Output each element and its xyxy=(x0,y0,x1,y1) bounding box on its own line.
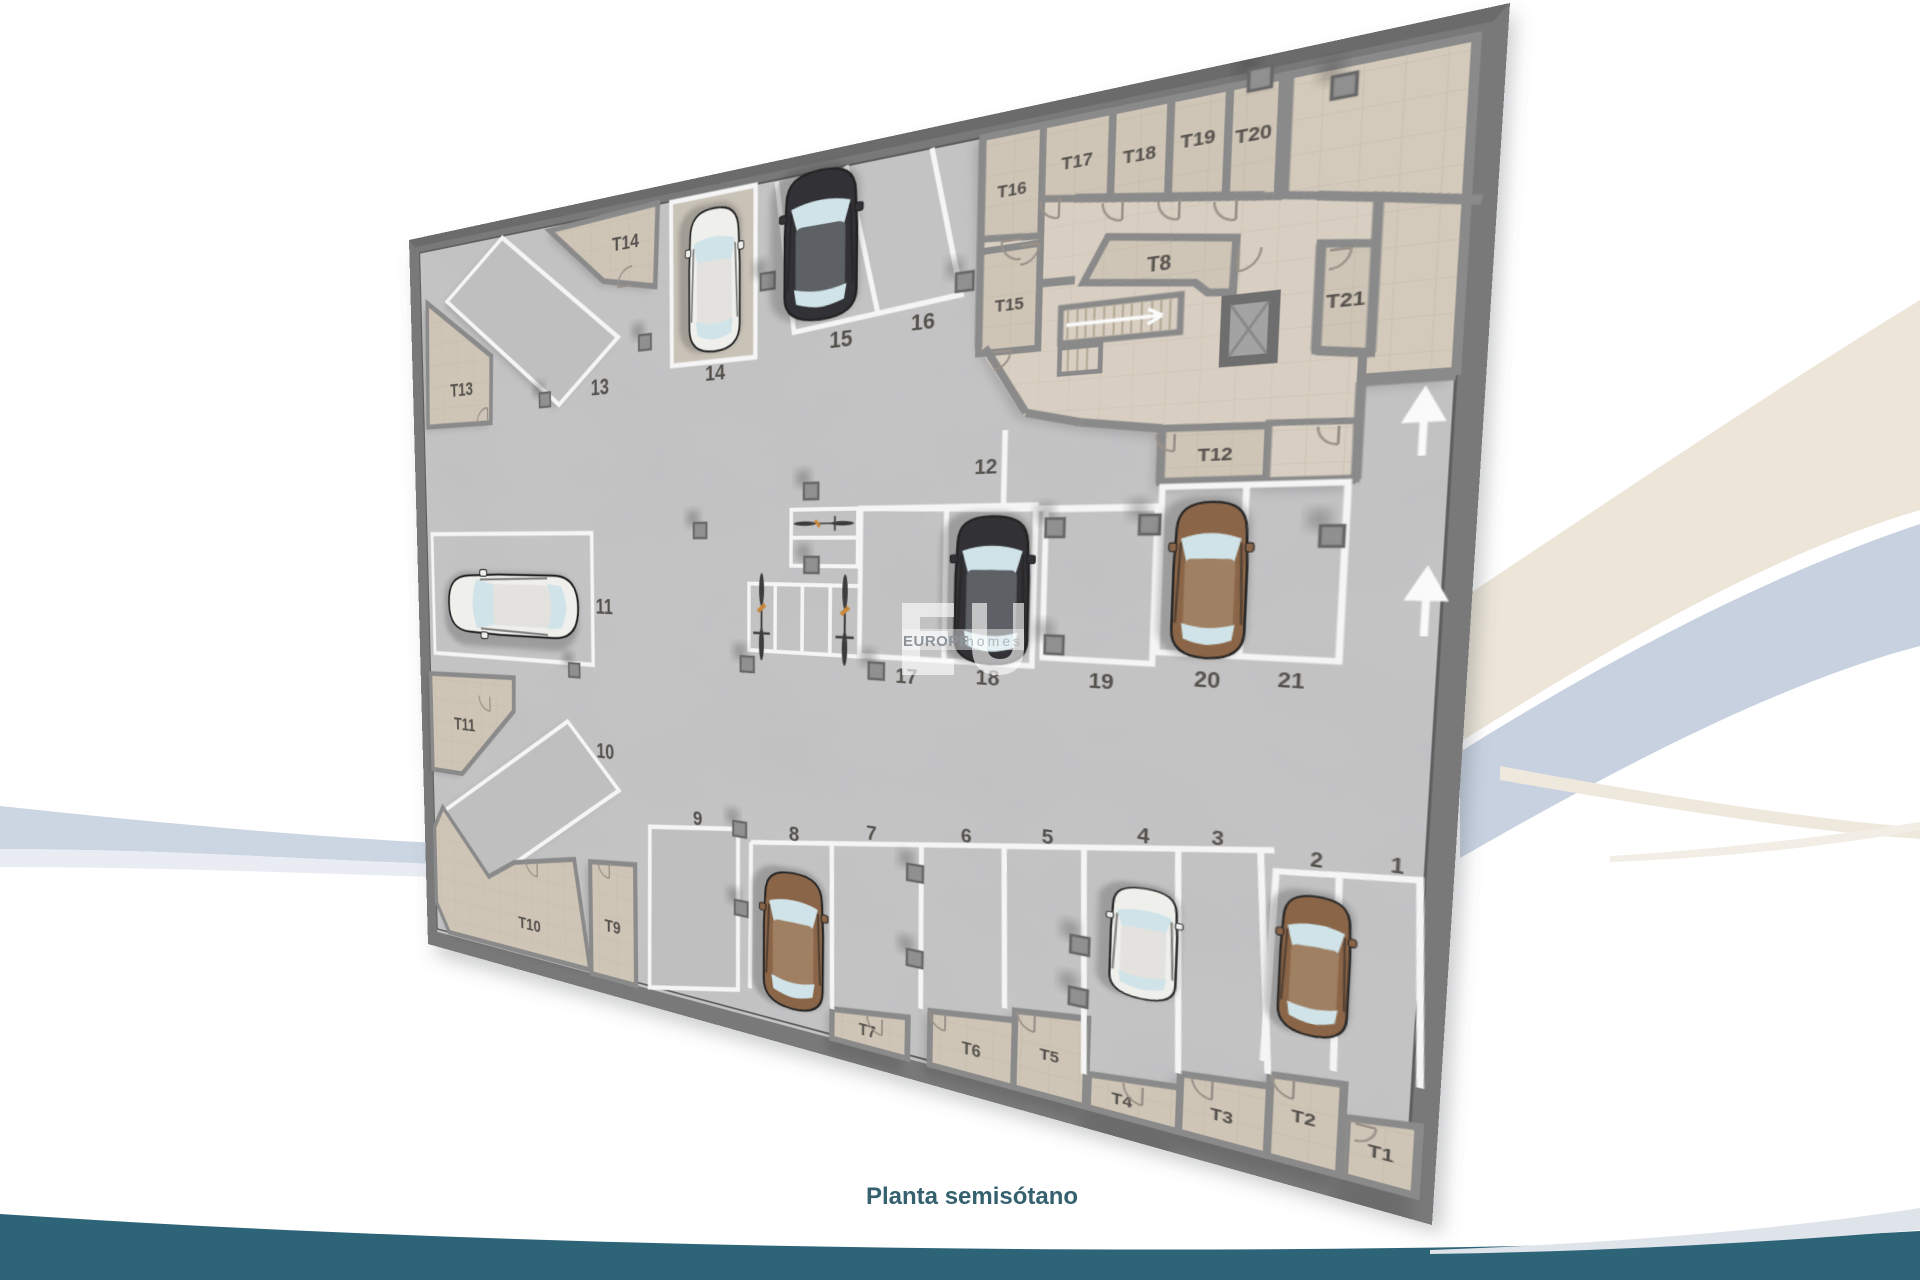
svg-text:homes: homes xyxy=(966,633,1023,649)
svg-text:T15: T15 xyxy=(995,295,1025,317)
svg-text:19: 19 xyxy=(1088,668,1114,695)
svg-text:T13: T13 xyxy=(450,379,473,402)
svg-text:12: 12 xyxy=(974,454,998,480)
svg-text:13: 13 xyxy=(591,376,610,401)
svg-text:5: 5 xyxy=(1041,824,1054,850)
svg-text:T12: T12 xyxy=(1197,445,1233,467)
svg-text:3: 3 xyxy=(1211,829,1225,852)
svg-text:15: 15 xyxy=(829,325,852,354)
svg-text:EUROPE: EUROPE xyxy=(903,633,969,650)
svg-text:T8: T8 xyxy=(1146,252,1171,277)
svg-text:6: 6 xyxy=(961,823,972,848)
svg-text:8: 8 xyxy=(789,822,800,847)
svg-text:T21: T21 xyxy=(1325,288,1366,314)
svg-text:T11: T11 xyxy=(454,714,476,736)
svg-text:11: 11 xyxy=(596,597,614,620)
svg-text:1: 1 xyxy=(1390,856,1405,880)
svg-text:2: 2 xyxy=(1310,850,1324,873)
svg-text:4: 4 xyxy=(1137,824,1151,849)
svg-text:7: 7 xyxy=(866,822,877,845)
svg-text:16: 16 xyxy=(911,308,936,337)
svg-text:T9: T9 xyxy=(605,916,622,938)
svg-text:9: 9 xyxy=(693,807,703,831)
svg-text:21: 21 xyxy=(1277,671,1306,695)
svg-text:10: 10 xyxy=(596,741,614,765)
svg-text:20: 20 xyxy=(1193,667,1221,693)
svg-text:14: 14 xyxy=(705,360,726,387)
svg-text:T14: T14 xyxy=(612,230,639,257)
